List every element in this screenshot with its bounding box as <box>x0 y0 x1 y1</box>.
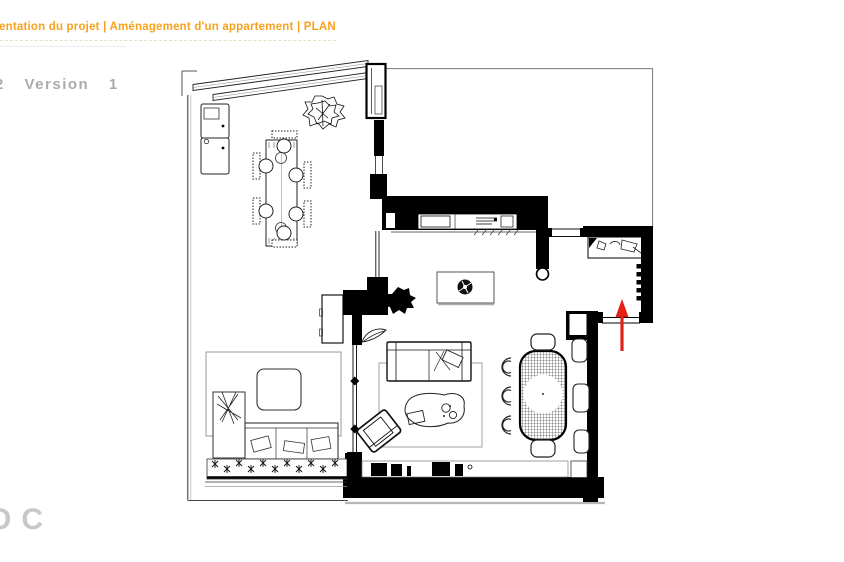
dining-chair-bottom <box>531 440 555 457</box>
duct-column <box>367 64 386 118</box>
glass-wall <box>350 345 359 453</box>
entrance-arrow <box>616 299 629 351</box>
terrace-plant <box>303 96 345 129</box>
dining-chairs-right <box>572 339 589 453</box>
entry-right-wall <box>641 237 653 323</box>
planter-strip <box>205 459 347 487</box>
dining-chair-top <box>531 334 555 350</box>
entry-top-wall <box>583 226 653 237</box>
terrace-lounge <box>205 352 347 487</box>
sofa <box>387 342 471 381</box>
door-pivot-circle <box>537 268 549 280</box>
doorway <box>548 228 584 237</box>
console-table <box>437 272 494 305</box>
bottom-wall <box>343 477 604 498</box>
outdoor-sofa <box>245 423 338 459</box>
dining-chairs-left <box>502 358 511 434</box>
wall-niche <box>571 461 587 478</box>
leaf-decor <box>362 329 386 342</box>
coffee-table <box>405 393 464 426</box>
armchair <box>356 409 402 453</box>
indoor-plant <box>384 287 416 314</box>
outdoor-cabinet <box>201 104 229 174</box>
presentation-slide: entation du projet | Aménagement d'un ap… <box>0 0 844 562</box>
hanging-chair <box>213 392 245 458</box>
coat-hooks <box>637 264 642 301</box>
ottoman <box>257 369 301 410</box>
dining-area <box>502 334 589 478</box>
left-wall-mass <box>343 277 388 345</box>
sideboard <box>322 295 343 343</box>
pergola-beams <box>193 61 368 101</box>
terrace-dining <box>201 96 345 247</box>
floor-plan <box>0 0 844 562</box>
